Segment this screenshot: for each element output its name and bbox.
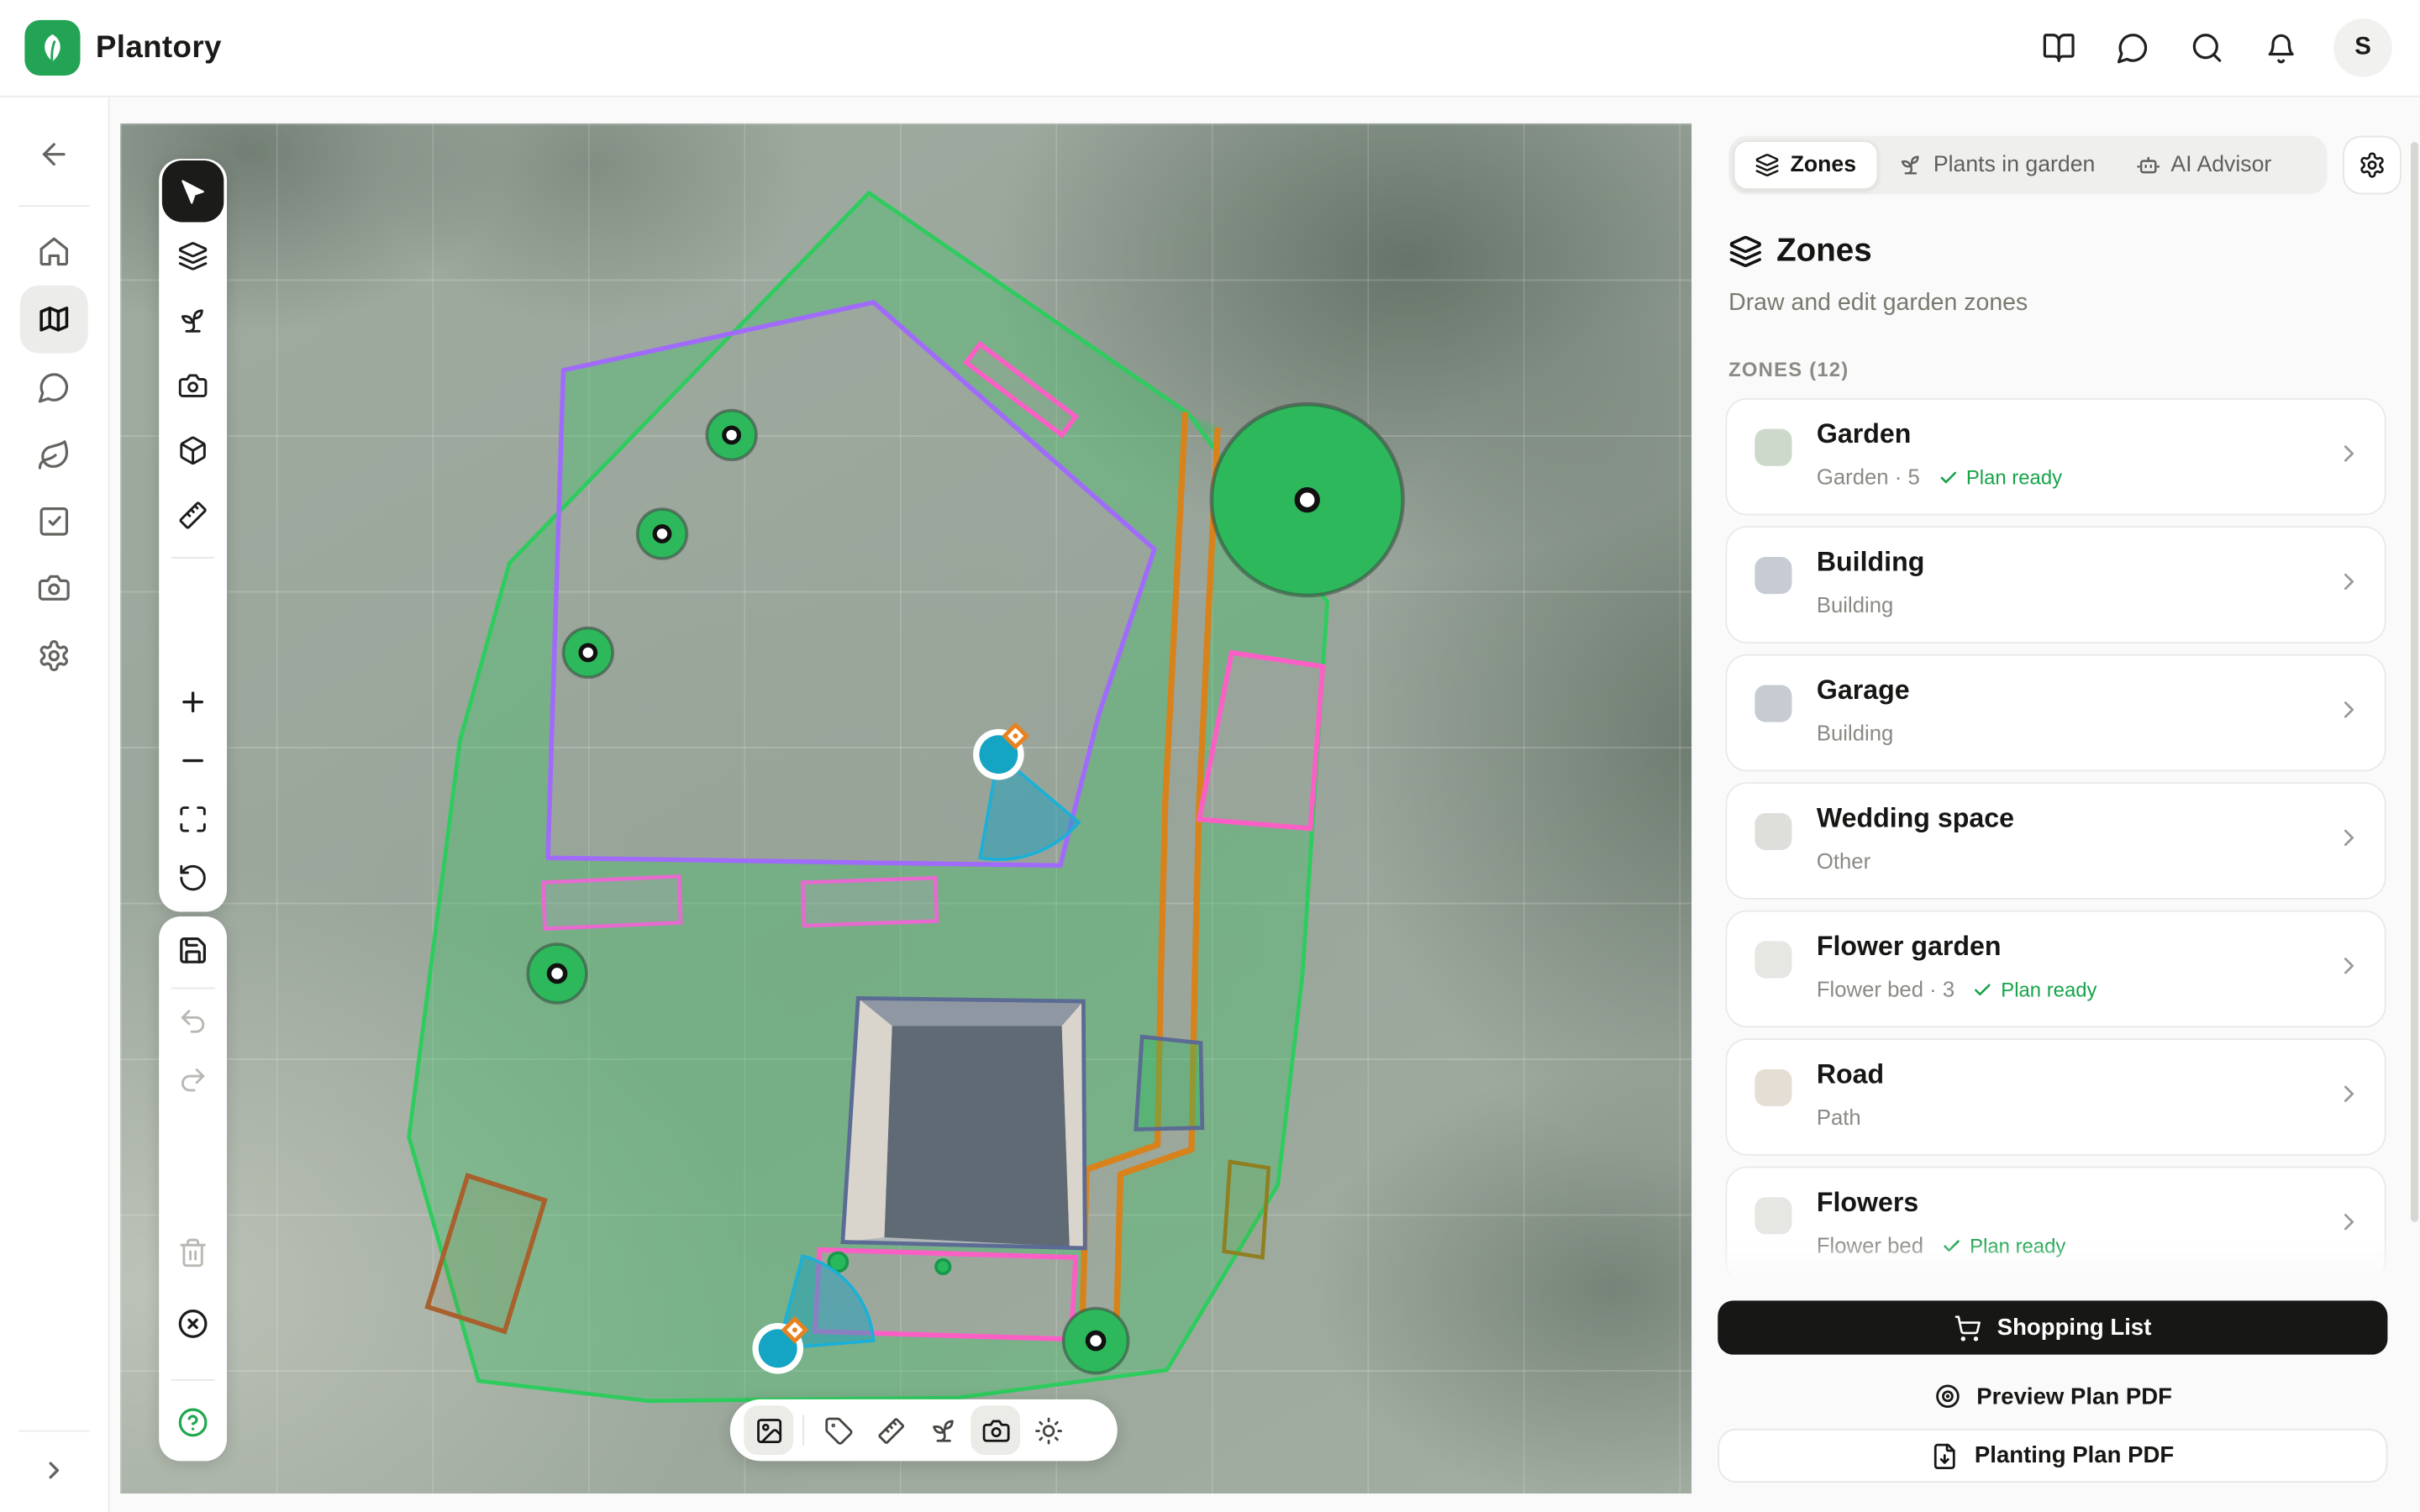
leaf-logo-icon <box>35 31 69 65</box>
zones-count-label: ZONES (12) <box>1728 358 1849 381</box>
check-icon <box>1973 979 1993 999</box>
zone-title: Flower garden <box>1817 931 2002 963</box>
preview-plan-pdf-label: Preview Plan PDF <box>1976 1383 2172 1410</box>
measure-tool-button[interactable] <box>162 485 224 546</box>
chevron-right-icon <box>2335 1080 2363 1108</box>
zone-meta: Other <box>1817 848 1870 873</box>
sidebar-expand-button[interactable] <box>20 1436 88 1504</box>
cancel-button[interactable] <box>162 1293 224 1354</box>
zoom-in-button[interactable] <box>162 671 224 732</box>
labels-toggle[interactable] <box>813 1405 863 1455</box>
zones-list: Garden Garden · 5 Plan ready Building Bu… <box>1725 398 2389 1330</box>
tab-label: Plants in garden <box>1933 153 2095 177</box>
sidebar-item-photos[interactable] <box>20 554 88 622</box>
sidebar-item-map[interactable] <box>20 286 88 354</box>
select-tool-button[interactable] <box>162 160 224 222</box>
reset-view-button[interactable] <box>162 847 224 908</box>
panel-footer: Shopping List Preview Plan PDF Planting … <box>1704 1280 2420 1512</box>
layers-tool-button[interactable] <box>162 225 224 286</box>
zoom-out-button[interactable] <box>162 730 224 791</box>
zone-swatch <box>1754 557 1791 594</box>
sun-toggle[interactable] <box>1023 1405 1073 1455</box>
zone-meta: Building <box>1817 592 1894 617</box>
user-avatar[interactable]: S <box>2333 18 2392 77</box>
tab-ai-advisor[interactable]: AI Advisor <box>2115 140 2291 190</box>
preview-icon <box>1933 1383 1961 1410</box>
tree-marker[interactable] <box>638 509 687 559</box>
top-header: Plantory S <box>0 0 2420 97</box>
zone-swatch <box>1754 429 1791 466</box>
cart-icon <box>1954 1314 1981 1341</box>
rail-divider <box>171 557 214 559</box>
sidebar-divider <box>18 1431 89 1432</box>
panel-subtitle: Draw and edit garden zones <box>1728 290 2028 318</box>
messages-icon[interactable] <box>2102 17 2164 78</box>
rail-divider <box>171 988 214 990</box>
tab-zones[interactable]: Zones <box>1733 140 1878 190</box>
zone-card[interactable]: Building Building <box>1725 526 2386 643</box>
sidebar-item-home[interactable] <box>20 218 88 286</box>
zone-title: Garage <box>1817 675 1910 707</box>
camera-marker[interactable] <box>973 725 1079 859</box>
plants-toggle[interactable] <box>918 1405 968 1455</box>
panel-settings-button[interactable] <box>2343 136 2402 195</box>
sprout-icon <box>1898 153 1923 177</box>
panel-heading: Zones <box>1728 233 1872 270</box>
left-sidebar <box>0 96 109 1512</box>
back-button[interactable] <box>20 120 88 188</box>
chevron-right-icon <box>2335 824 2363 852</box>
chevron-right-icon <box>2335 1208 2363 1236</box>
tree-marker[interactable] <box>528 944 587 1003</box>
zone-title: Garden <box>1817 418 1912 451</box>
layers-icon <box>1754 153 1779 177</box>
zone-shape-flower-bed-2[interactable] <box>802 878 937 926</box>
app-window: Plantory S <box>0 0 2420 1512</box>
map-tool-rail-top <box>159 159 227 911</box>
sidebar-item-plants[interactable] <box>20 421 88 489</box>
zone-plan-ready-label: Plan ready <box>2001 978 2096 1001</box>
zone-swatch <box>1754 1069 1791 1106</box>
tree-marker[interactable] <box>563 628 613 678</box>
undo-button[interactable] <box>162 990 224 1052</box>
save-button[interactable] <box>162 920 224 981</box>
delete-button[interactable] <box>162 1222 224 1284</box>
bot-icon <box>2135 153 2160 177</box>
fit-view-button[interactable] <box>162 789 224 850</box>
tree-marker[interactable] <box>707 411 756 460</box>
planting-plan-pdf-label: Planting Plan PDF <box>1975 1442 2174 1468</box>
check-icon <box>1939 467 1959 487</box>
zone-plan-ready: Plan ready <box>1939 465 2062 489</box>
zone-swatch <box>1754 1197 1791 1234</box>
sidebar-item-settings[interactable] <box>20 622 88 690</box>
zone-shape-flower-bed-1[interactable] <box>544 876 681 928</box>
shopping-list-label: Shopping List <box>1997 1315 2152 1341</box>
sidebar-item-messages[interactable] <box>20 354 88 422</box>
library-icon[interactable] <box>2028 17 2089 78</box>
chevron-right-icon <box>2335 952 2363 979</box>
zone-card[interactable]: Garage Building <box>1725 654 2386 772</box>
map-view-toolbar <box>730 1399 1118 1461</box>
zone-card[interactable]: Road Path <box>1725 1038 2386 1156</box>
panel-title: Zones <box>1776 233 1872 270</box>
objects-3d-tool-button[interactable] <box>162 420 224 481</box>
map-tool-rail-bottom <box>159 916 227 1461</box>
zone-meta: Flower bed · 3 <box>1817 977 1954 1001</box>
chevron-right-icon <box>2335 696 2363 723</box>
zone-title: Building <box>1817 546 1925 579</box>
zone-card[interactable]: Flower garden Flower bed · 3 Plan ready <box>1725 911 2386 1028</box>
photos-toggle[interactable] <box>971 1405 1020 1455</box>
zone-title: Wedding space <box>1817 802 2014 835</box>
notifications-icon[interactable] <box>2250 17 2312 78</box>
zone-title: Road <box>1817 1058 1884 1091</box>
zone-swatch <box>1754 685 1791 722</box>
shopping-list-button[interactable]: Shopping List <box>1718 1300 2387 1354</box>
layers-icon <box>1728 234 1762 268</box>
background-image-toggle[interactable] <box>744 1405 793 1455</box>
sidebar-divider <box>18 205 89 207</box>
search-icon[interactable] <box>2176 17 2238 78</box>
preview-plan-pdf-button[interactable]: Preview Plan PDF <box>1718 1370 2387 1422</box>
zone-shape-building[interactable] <box>843 998 1085 1248</box>
zone-meta: Path <box>1817 1105 1861 1129</box>
zone-plan-ready: Plan ready <box>1973 978 2096 1001</box>
tree-marker-large[interactable] <box>1212 404 1403 596</box>
zone-title: Flowers <box>1817 1186 1918 1219</box>
help-button[interactable] <box>162 1392 224 1453</box>
chevron-right-icon <box>2335 439 2363 467</box>
tab-plants-in-garden[interactable]: Plants in garden <box>1878 140 2115 190</box>
redo-button[interactable] <box>162 1049 224 1110</box>
photo-tool-button[interactable] <box>162 354 224 416</box>
zones-overlay <box>120 123 1691 1494</box>
zone-card[interactable]: Wedding space Other <box>1725 782 2386 900</box>
chevron-right-icon <box>2335 568 2363 596</box>
tree-marker[interactable] <box>1064 1309 1128 1373</box>
zone-shape-planter-olive[interactable] <box>1224 1162 1269 1257</box>
toolbar-divider <box>802 1415 804 1446</box>
garden-map-canvas[interactable] <box>120 123 1691 1494</box>
panel-tabs: Zones Plants in garden AI Advisor <box>1728 136 2328 195</box>
zone-meta: Garden · 5 <box>1817 465 1920 489</box>
brand-title: Plantory <box>96 30 222 66</box>
plant-marker[interactable] <box>936 1260 950 1274</box>
zone-plan-ready-label: Plan ready <box>1966 465 2062 489</box>
plant-tool-button[interactable] <box>162 290 224 351</box>
zone-card[interactable]: Garden Garden · 5 Plan ready <box>1725 398 2386 516</box>
panel-scrollbar[interactable] <box>2411 142 2418 1222</box>
tab-label: Zones <box>1791 153 1856 177</box>
planting-plan-pdf-button[interactable]: Planting Plan PDF <box>1718 1429 2387 1483</box>
zone-meta: Building <box>1817 721 1894 745</box>
measurements-toggle[interactable] <box>865 1405 915 1455</box>
zone-shape-building-annex[interactable] <box>1136 1037 1202 1129</box>
tab-label: AI Advisor <box>2170 153 2271 177</box>
sidebar-item-tasks[interactable] <box>20 487 88 555</box>
zones-panel: Zones Plants in garden AI Advisor Zones … <box>1704 96 2420 1512</box>
zone-swatch <box>1754 941 1791 978</box>
zone-swatch <box>1754 813 1791 850</box>
file-download-icon <box>1931 1441 1959 1469</box>
rail-divider <box>171 1379 214 1381</box>
app-logo[interactable] <box>24 20 80 76</box>
